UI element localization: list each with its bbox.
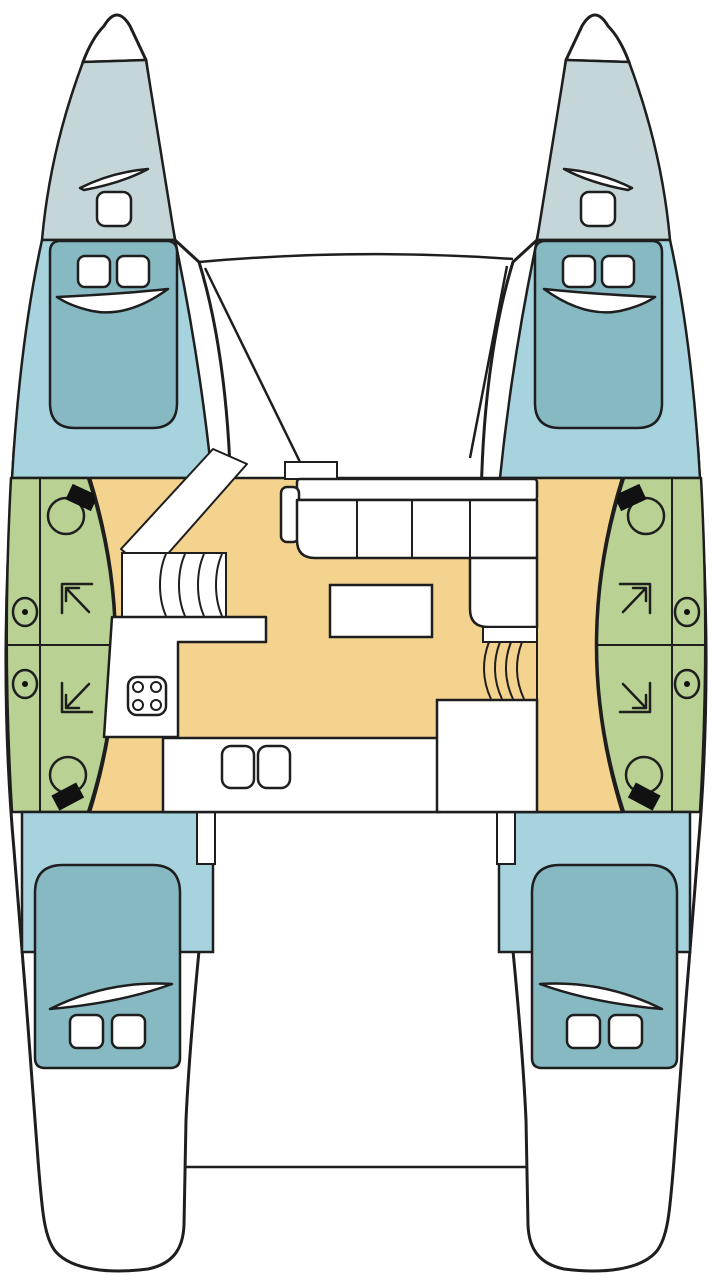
starboard-counter <box>437 700 537 812</box>
sofa-corner-seat <box>470 558 537 627</box>
port-stairs <box>122 553 226 617</box>
stove <box>128 677 166 715</box>
catamaran-floorplan <box>0 0 712 1280</box>
sofa-back <box>297 479 537 500</box>
sofa-seat-row <box>297 500 537 558</box>
forward-crossbeam-line <box>199 254 513 262</box>
galley-sink <box>258 746 290 788</box>
aft-galley-counter <box>163 738 440 812</box>
saloon-table <box>330 585 432 637</box>
saloon-entry-step <box>285 462 337 479</box>
starboard-stair-landing <box>483 627 537 642</box>
floorplan-svg <box>0 0 712 1280</box>
galley-sink <box>222 746 254 788</box>
